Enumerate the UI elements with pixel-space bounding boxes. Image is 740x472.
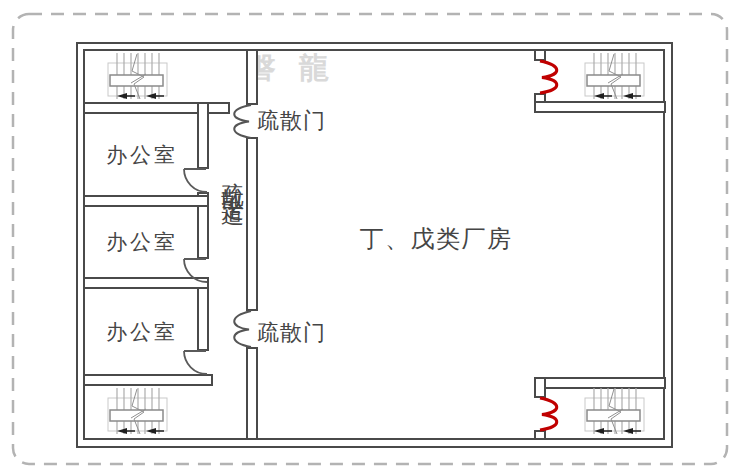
wall-office3-bottom [84,375,212,385]
evacuation-floor-plan: { "plan": { "title_area": { "watermark":… [0,0,740,472]
floor-plan-svg [0,0,740,472]
office-door-arc-icon [184,169,207,192]
wall-stair-br-top [535,378,665,388]
fire-doors [540,61,557,430]
fire-door-icon [540,61,557,93]
double-door-icon [234,311,251,347]
fire-door-icon [540,398,557,430]
wall-office-partition-2 [84,278,208,288]
stairs-icon [585,388,644,434]
wall-corridor-left-3 [198,283,208,350]
stairs-icon [585,53,644,99]
wall-office-partition-1 [84,196,208,206]
wall-stair-br-left-2 [535,431,545,439]
double-door-icon [234,105,251,138]
stairs-icon [108,53,167,99]
wall-stair-tr-left-1 [535,50,545,60]
wall-stair-br-left-1 [535,378,545,397]
interior-walls [84,50,665,439]
office-door-arc-icon [184,351,207,374]
wall-stair-tr-bottom [535,102,665,112]
wall-corridor-right-2 [247,138,257,310]
wall-corridor-right-1 [247,50,257,104]
wall-corridor-left-1 [198,103,208,168]
wall-corridor-right-3 [247,348,257,439]
stairs-icon [108,388,167,434]
